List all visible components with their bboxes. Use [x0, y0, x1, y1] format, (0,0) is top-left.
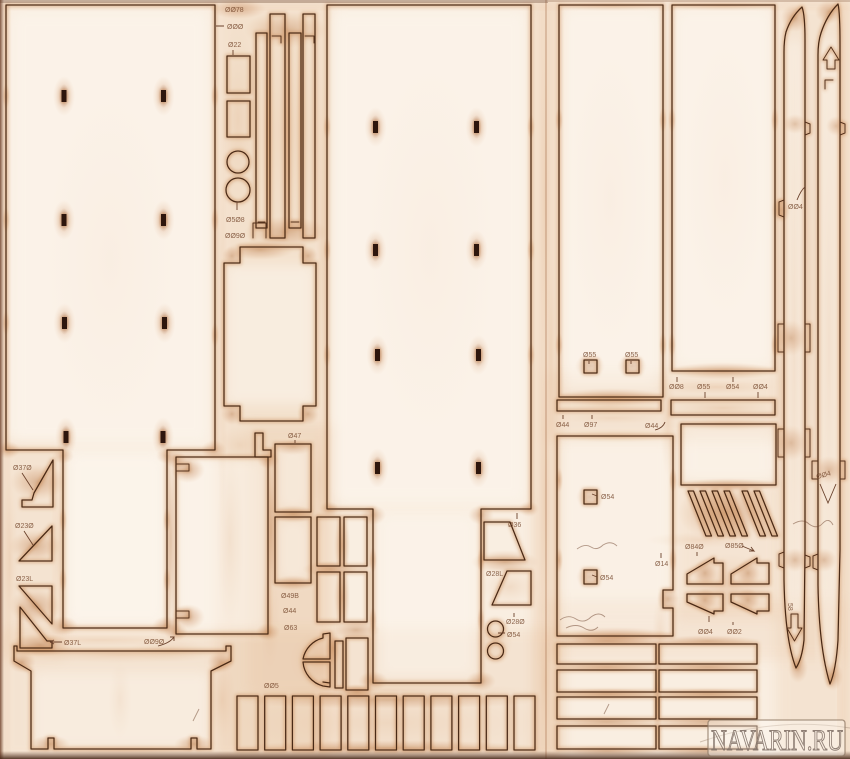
svg-text:Ø55: Ø55	[697, 384, 710, 391]
svg-text:Ø5Ø8: Ø5Ø8	[226, 217, 245, 224]
svg-text:Ø44: Ø44	[283, 608, 296, 615]
svg-text:Ø37Ø: Ø37Ø	[13, 465, 32, 472]
svg-text:Ø54: Ø54	[507, 632, 520, 639]
svg-text:Ø37L: Ø37L	[64, 640, 81, 647]
svg-text:Ø85Ø: Ø85Ø	[725, 543, 744, 550]
svg-text:Ø54: Ø54	[600, 575, 613, 582]
svg-text:Ø28Ø: Ø28Ø	[506, 619, 525, 626]
svg-text:Ø36: Ø36	[508, 522, 521, 529]
svg-text:Ø63: Ø63	[284, 625, 297, 632]
svg-text:ØØ5: ØØ5	[264, 683, 279, 690]
svg-text:Ø47: Ø47	[288, 433, 301, 440]
svg-text:Ø23L: Ø23L	[16, 576, 33, 583]
svg-text:Ø97: Ø97	[584, 422, 597, 429]
svg-text:Ø22: Ø22	[228, 42, 241, 49]
svg-text:Ø23Ø: Ø23Ø	[15, 523, 34, 530]
svg-text:Ø14: Ø14	[655, 561, 668, 568]
svg-text:58: 58	[786, 603, 793, 611]
svg-text:Ø54: Ø54	[726, 384, 739, 391]
svg-text:ØØ2: ØØ2	[727, 629, 742, 636]
svg-text:ØØ8: ØØ8	[669, 384, 684, 391]
svg-text:Ø28L: Ø28L	[486, 571, 503, 578]
svg-text:Ø55: Ø55	[625, 352, 638, 359]
svg-text:Ø84Ø: Ø84Ø	[685, 544, 704, 551]
svg-text:ØØ4: ØØ4	[788, 204, 803, 211]
svg-text:Ø44: Ø44	[556, 422, 569, 429]
svg-text:Ø49B: Ø49B	[281, 593, 299, 600]
svg-text:Ø54: Ø54	[601, 494, 614, 501]
svg-text:ØØ4: ØØ4	[698, 629, 713, 636]
svg-text:ØØ4: ØØ4	[753, 384, 768, 391]
svg-text:Ø55: Ø55	[583, 352, 596, 359]
svg-text:ØØØ: ØØØ	[227, 24, 244, 31]
svg-text:ØØ78: ØØ78	[225, 7, 244, 14]
svg-text:ØØ9Ø: ØØ9Ø	[225, 233, 246, 240]
svg-text:NAVARIN.RU: NAVARIN.RU	[711, 724, 843, 757]
svg-text:Ø44: Ø44	[645, 423, 658, 430]
